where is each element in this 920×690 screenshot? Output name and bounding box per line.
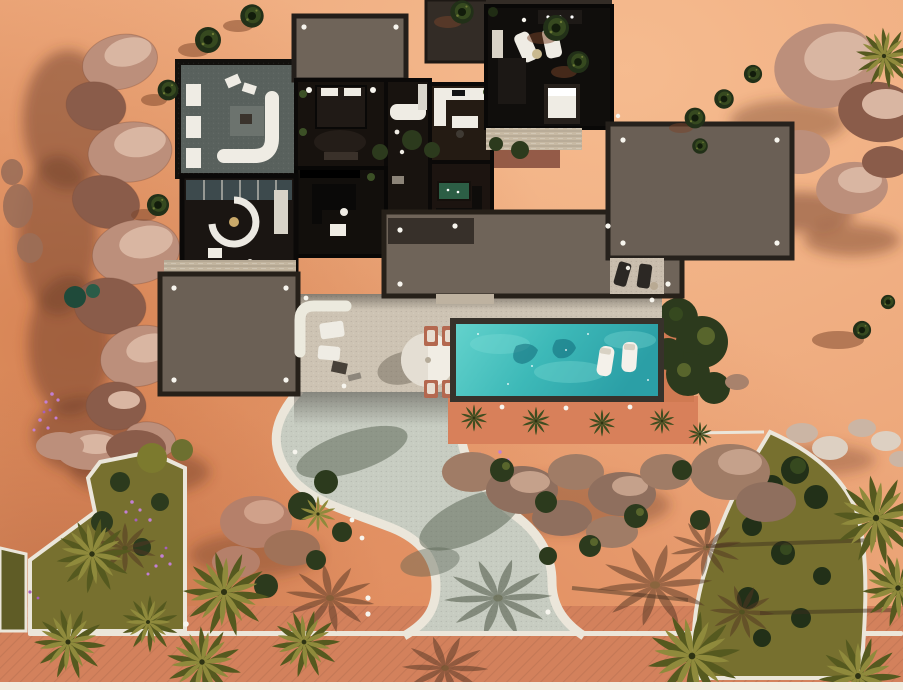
flat-roof-lower-left — [160, 274, 298, 394]
stone-step — [436, 294, 494, 304]
gray-carpet-living-room — [178, 62, 300, 176]
scene-canvas — [0, 0, 920, 690]
pool-table — [438, 182, 470, 200]
master-bedroom — [296, 80, 386, 168]
bottom-margin — [0, 682, 903, 690]
teal-bush — [64, 286, 86, 308]
game-viewport[interactable] — [0, 0, 920, 690]
right-margin — [903, 0, 920, 690]
flat-roof-top-left — [294, 16, 406, 80]
swimming-pool — [450, 318, 664, 402]
media-room — [296, 168, 386, 256]
bathroom-hall — [386, 80, 430, 232]
roof-deck — [610, 258, 664, 294]
